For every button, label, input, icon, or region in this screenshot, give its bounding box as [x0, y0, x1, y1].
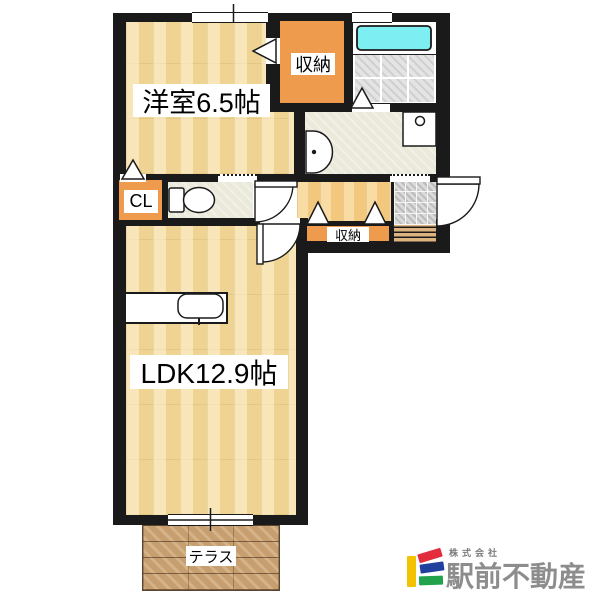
- storage-top-door-triangle-icon: [253, 39, 276, 63]
- room-label-ldk-text: LDK12.9帖: [141, 352, 278, 392]
- room-label-storage-hall-text: 収納: [335, 225, 361, 244]
- washbasin-drain-icon: [312, 150, 316, 154]
- entrance-door-arc: [437, 184, 479, 226]
- ldk-door-leaf: [257, 224, 263, 264]
- bath-door-triangle-icon: [351, 88, 373, 108]
- storage-hall-triangle-right-icon: [364, 202, 386, 224]
- room-label-western-text: 洋室6.5帖: [142, 81, 261, 120]
- toilet-door-leaf: [255, 181, 297, 187]
- washing-machine-faucet-icon: [416, 117, 425, 126]
- company-name: 駅前不動産: [446, 555, 586, 595]
- room-label-ldk: LDK12.9帖: [130, 355, 288, 389]
- washbasin-icon: [306, 131, 333, 173]
- toilet-tank-icon: [169, 188, 184, 212]
- room-label-storage-top: 収納: [291, 53, 335, 75]
- company-logo: 株式会社 駅前不動産: [400, 540, 595, 595]
- logo-green-bar-icon: [419, 576, 443, 586]
- storage-hall-triangle-left-icon: [307, 202, 329, 224]
- cl-door-triangle-icon: [122, 160, 144, 179]
- room-label-cl: CL: [124, 190, 158, 213]
- toilet-bowl-icon: [184, 188, 215, 213]
- kitchen-sink-icon: [178, 294, 223, 318]
- room-label-terrace-text: テラス: [189, 546, 234, 567]
- toilet-door-arc: [255, 184, 293, 222]
- entrance-door-leaf: [437, 177, 480, 184]
- room-label-storage-hall: 収納: [327, 227, 369, 242]
- logo-blue-bar-icon: [419, 561, 444, 573]
- room-label-western: 洋室6.5帖: [133, 84, 270, 117]
- bathtub-icon: [357, 26, 431, 50]
- floor-plan: 洋室6.5帖 LDK12.9帖 収納 CL 収納 テラス 株式会社 駅前不動産: [0, 0, 600, 600]
- room-label-terrace: テラス: [186, 546, 236, 566]
- logo-yellow-bar-icon: [407, 556, 416, 587]
- company-name-text: 駅前不動産: [446, 561, 586, 592]
- fixtures-overlay: [0, 0, 600, 600]
- room-label-storage-top-text: 収納: [295, 51, 331, 77]
- ldk-door-arc: [262, 224, 300, 262]
- room-label-cl-text: CL: [129, 191, 152, 212]
